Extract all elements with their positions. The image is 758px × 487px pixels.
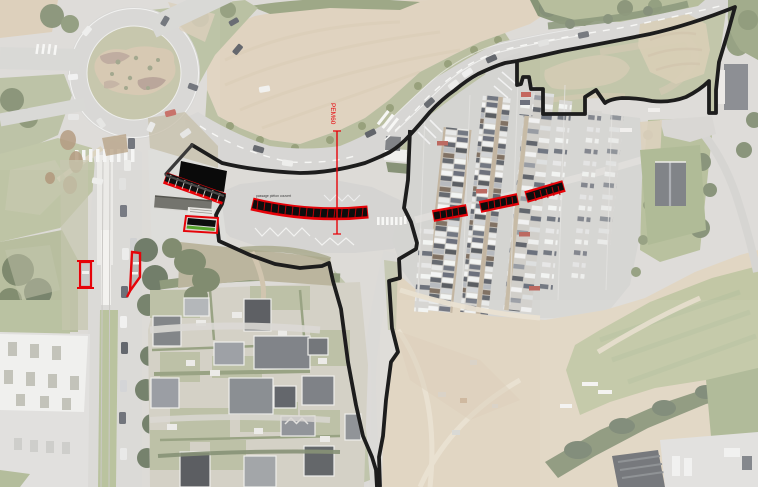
svg-text:PEM60: PEM60 [329,103,336,125]
svg-text:passage piéton couvert: passage piéton couvert [256,194,291,198]
